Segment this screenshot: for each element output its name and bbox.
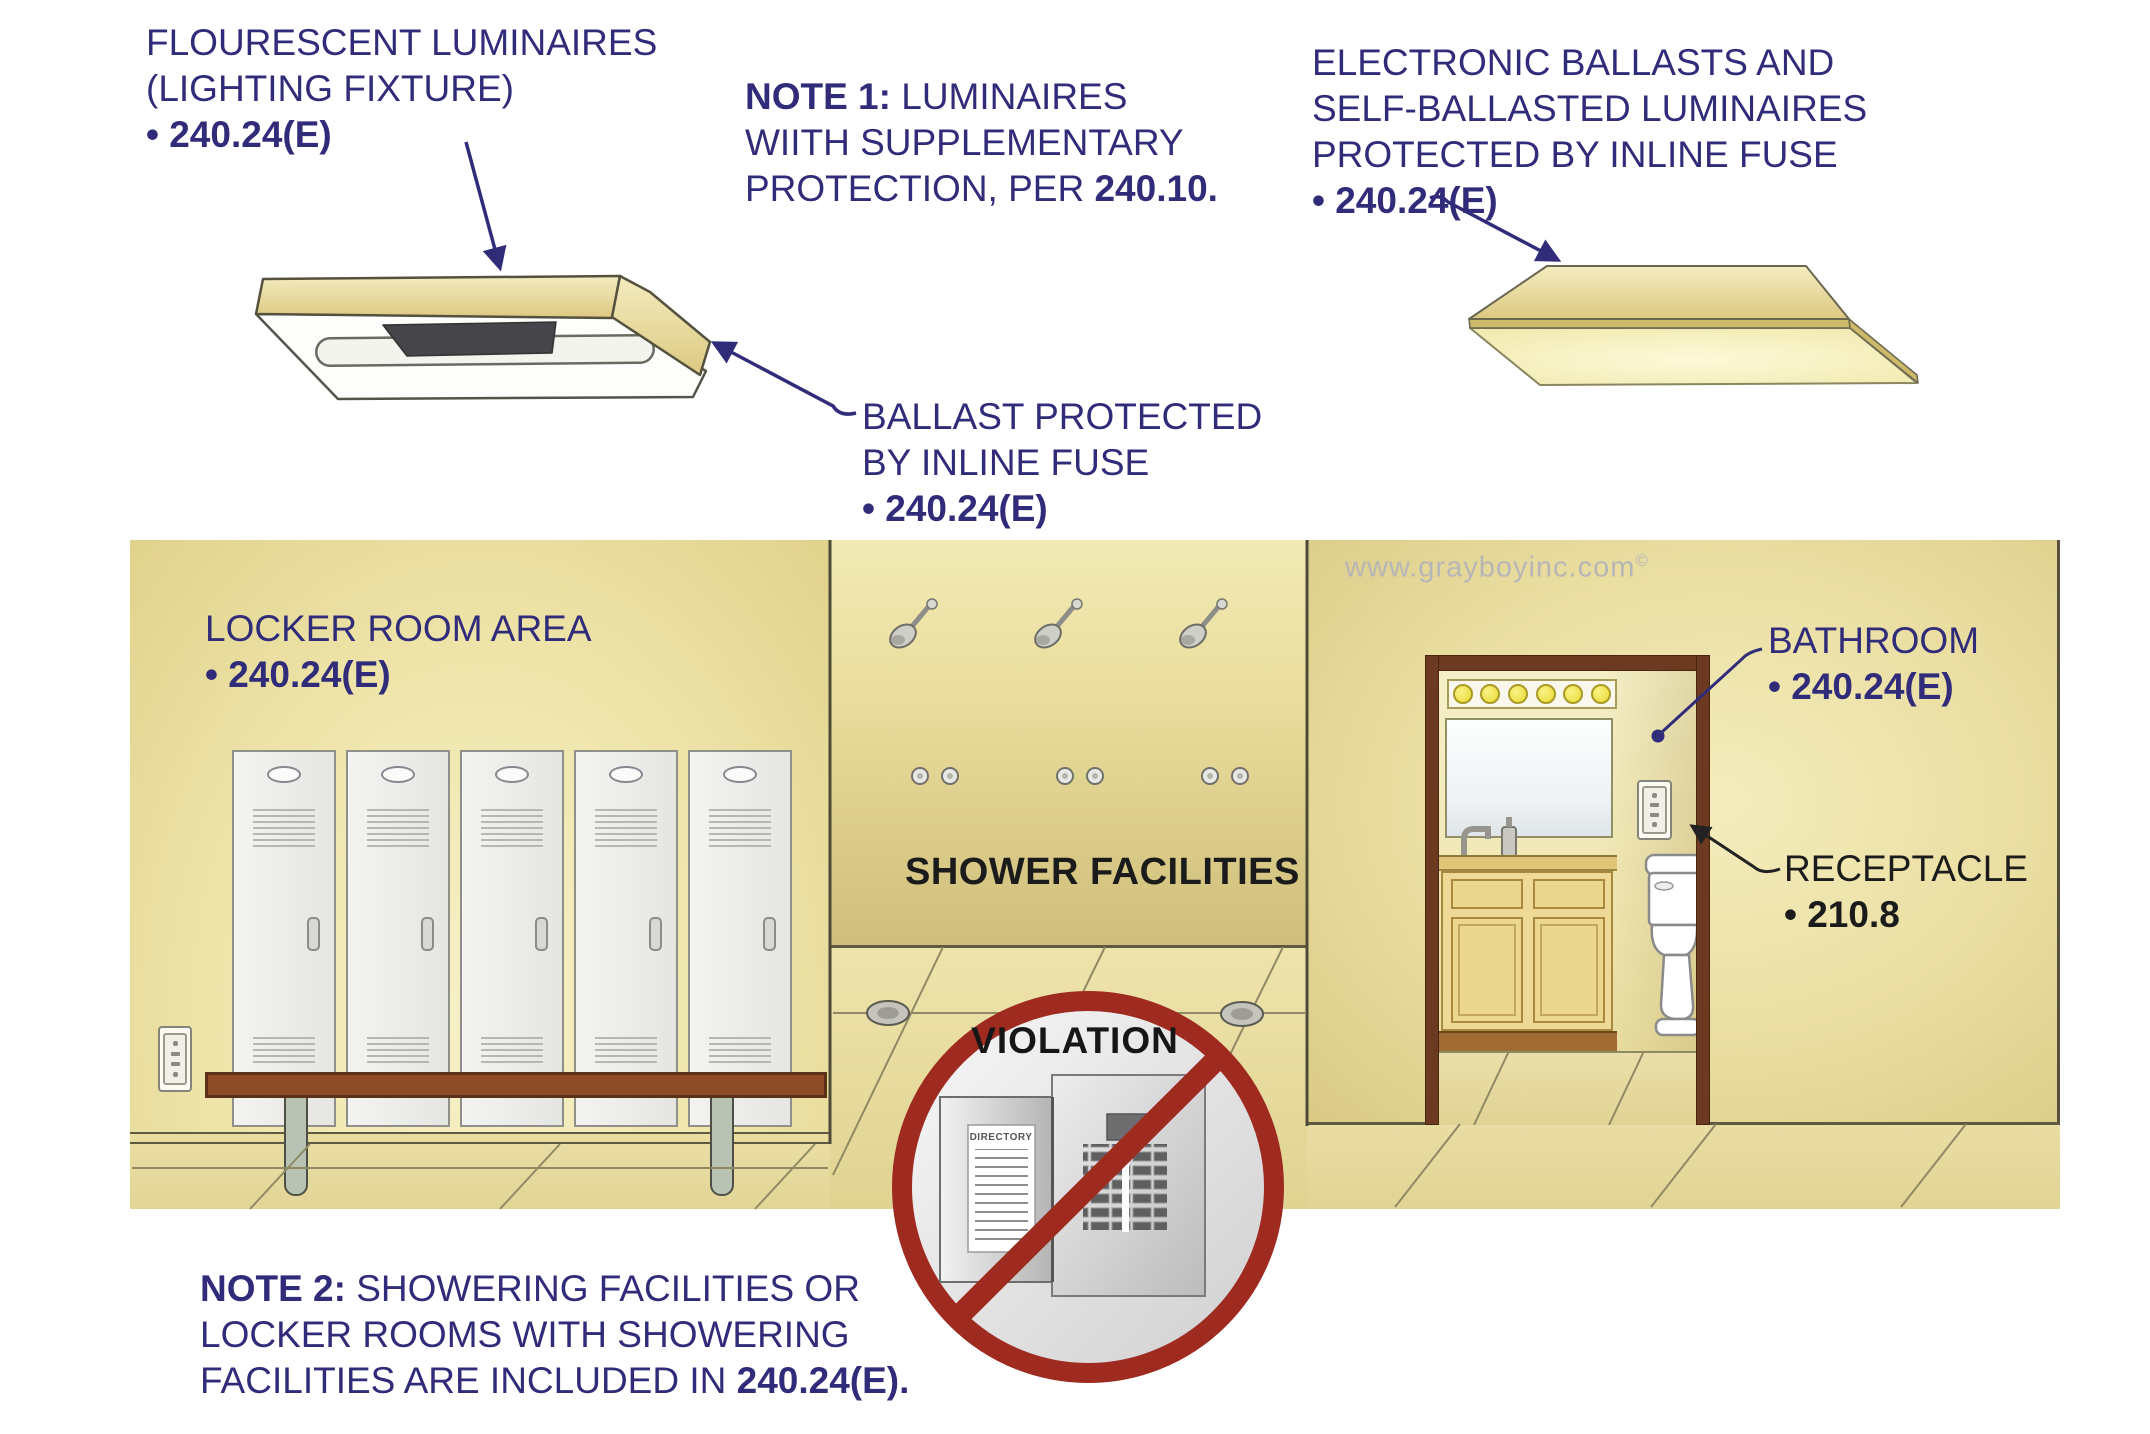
label-note2: NOTE 2: SHOWERING FACILITIES OR LOCKER R… [200,1266,909,1404]
nec-240-24e-illustration: DIRECTORY VIOLATION FLOURESCENT LUMINAIR… [0,0,2150,1434]
label-locker-room-area: LOCKER ROOM AREA • 240.24(E) [205,606,592,698]
label-fluorescent-luminaires: FLOURESCENT LUMINAIRES (LIGHTING FIXTURE… [146,20,657,158]
arrow-to-fluorescent-fixture [466,142,500,268]
label-electronic-ballasts: ELECTRONIC BALLASTS AND SELF-BALLASTED L… [1312,40,1867,224]
label-note1: NOTE 1: LUMINAIRES WIITH SUPPLEMENTARY P… [745,74,1218,212]
electronic-luminaire [1469,266,1918,385]
arrow-to-receptacle [1692,826,1780,872]
violation-label: VIOLATION [971,1020,1179,1061]
leader-to-bathroom [1662,649,1762,732]
arrow-to-ballast [714,343,856,414]
label-receptacle: RECEPTACLE • 210.8 [1784,846,2028,938]
shower-head-icon [886,599,1248,784]
label-bathroom: BATHROOM • 240.24(E) [1768,618,1979,710]
label-ballast-protected: BALLAST PROTECTED BY INLINE FUSE • 240.2… [862,394,1262,532]
directory-label: DIRECTORY [970,1132,1033,1143]
watermark: www.grayboyinc.com© [1345,551,1649,585]
bathroom-leader-dot [1652,730,1665,743]
fluorescent-fixture [256,276,710,399]
violation-emblem: DIRECTORY VIOLATION [880,968,1300,1408]
label-shower-facilities: SHOWER FACILITIES [905,851,1300,894]
